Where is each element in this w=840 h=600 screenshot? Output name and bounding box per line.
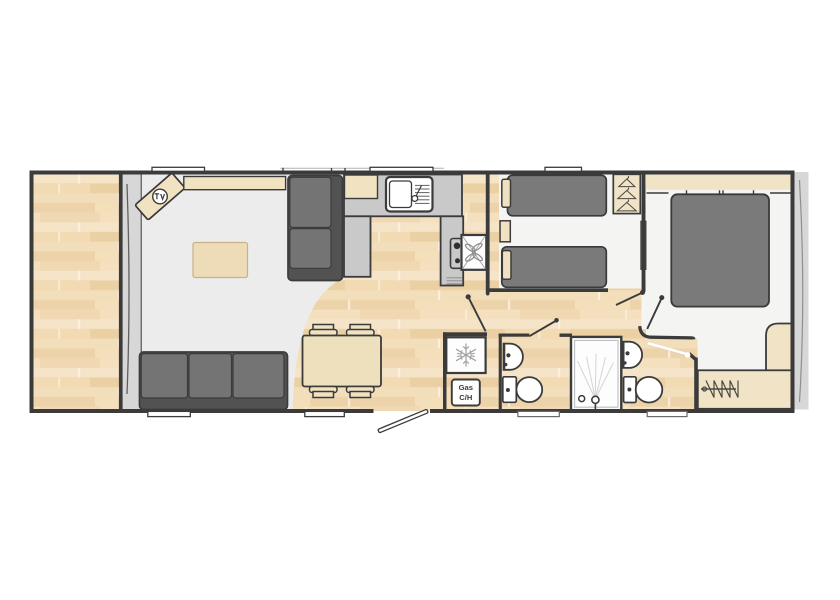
svg-text:C/H: C/H	[459, 393, 472, 402]
svg-text:Gas: Gas	[459, 383, 473, 392]
